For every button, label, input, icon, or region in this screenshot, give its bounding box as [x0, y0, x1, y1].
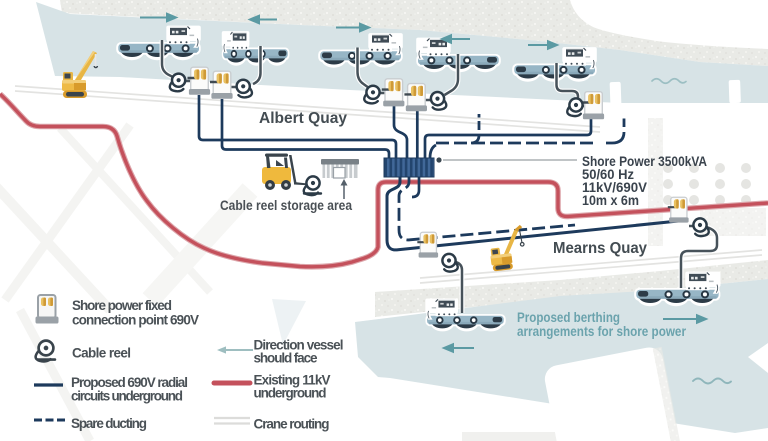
- svg-text:Spare ducting: Spare ducting: [71, 416, 147, 431]
- svg-text:Cable reel storage area: Cable reel storage area: [220, 198, 352, 213]
- svg-text:Albert Quay: Albert Quay: [259, 110, 347, 127]
- svg-text:10m x 6m: 10m x 6m: [582, 192, 639, 208]
- svg-text:Shore power fixed: Shore power fixed: [72, 298, 172, 313]
- svg-text:arrangements for shore power: arrangements for shore power: [517, 324, 687, 339]
- svg-text:underground: underground: [254, 386, 327, 401]
- svg-text:Proposed berthing: Proposed berthing: [517, 310, 620, 325]
- svg-text:circuits underground: circuits underground: [71, 389, 183, 404]
- svg-text:connection point 690V: connection point 690V: [72, 313, 199, 328]
- svg-text:should face: should face: [254, 351, 318, 366]
- svg-text:Crane routing: Crane routing: [254, 417, 330, 432]
- svg-text:Mearns Quay: Mearns Quay: [553, 240, 647, 257]
- svg-text:Cable reel: Cable reel: [72, 346, 131, 361]
